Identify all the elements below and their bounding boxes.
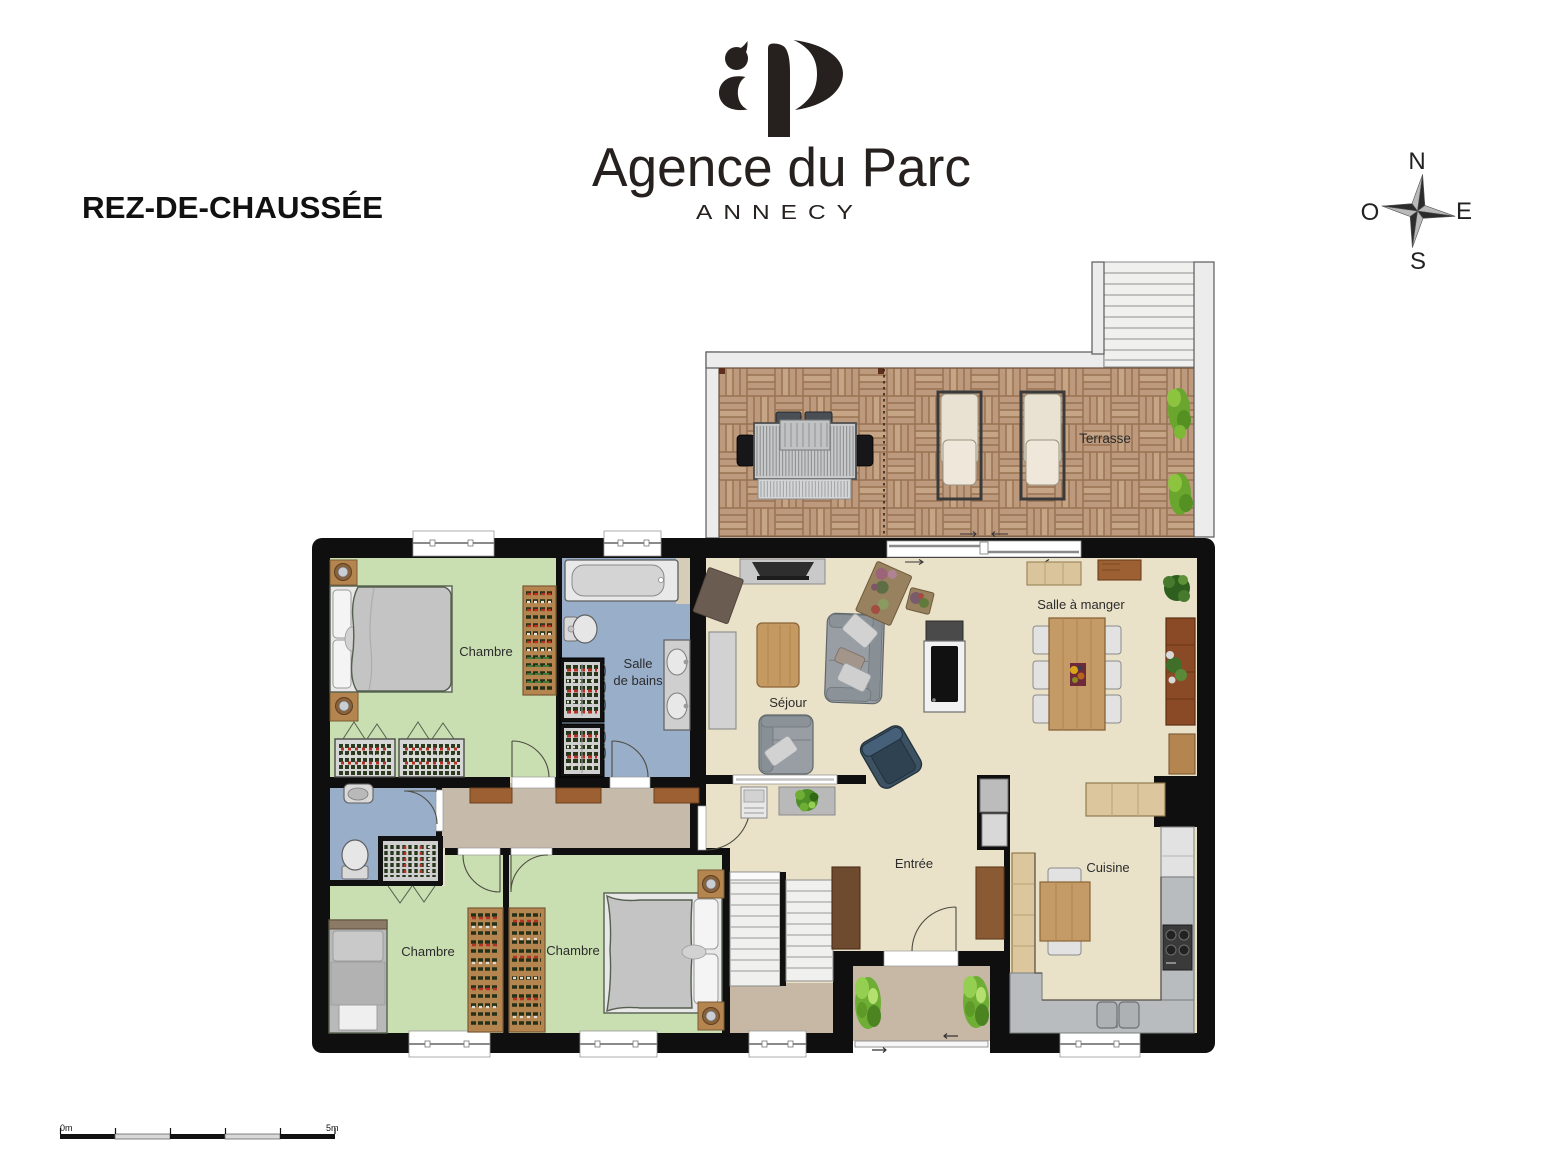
svg-text:Entrée: Entrée — [895, 856, 933, 871]
svg-text:E: E — [1456, 198, 1472, 225]
svg-text:Agence du Parc: Agence du Parc — [592, 136, 971, 198]
svg-text:N: N — [1408, 148, 1425, 175]
svg-text:S: S — [1410, 248, 1426, 275]
svg-text:Chambre: Chambre — [546, 943, 599, 958]
svg-text:Chambre: Chambre — [459, 644, 512, 659]
svg-text:Cuisine: Cuisine — [1086, 860, 1129, 875]
svg-text:0m: 0m — [60, 1123, 73, 1133]
svg-text:Chambre: Chambre — [401, 944, 454, 959]
svg-text:ANNECY: ANNECY — [696, 202, 864, 224]
svg-text:Salle: Salle — [624, 656, 653, 671]
svg-text:Terrasse: Terrasse — [1079, 431, 1131, 446]
svg-text:Salle à manger: Salle à manger — [1037, 597, 1125, 612]
svg-text:O: O — [1361, 199, 1380, 226]
svg-text:de bains: de bains — [613, 673, 663, 688]
svg-text:Séjour: Séjour — [769, 695, 807, 710]
svg-text:REZ-DE-CHAUSSÉE: REZ-DE-CHAUSSÉE — [82, 190, 383, 225]
svg-text:5m: 5m — [326, 1123, 339, 1133]
